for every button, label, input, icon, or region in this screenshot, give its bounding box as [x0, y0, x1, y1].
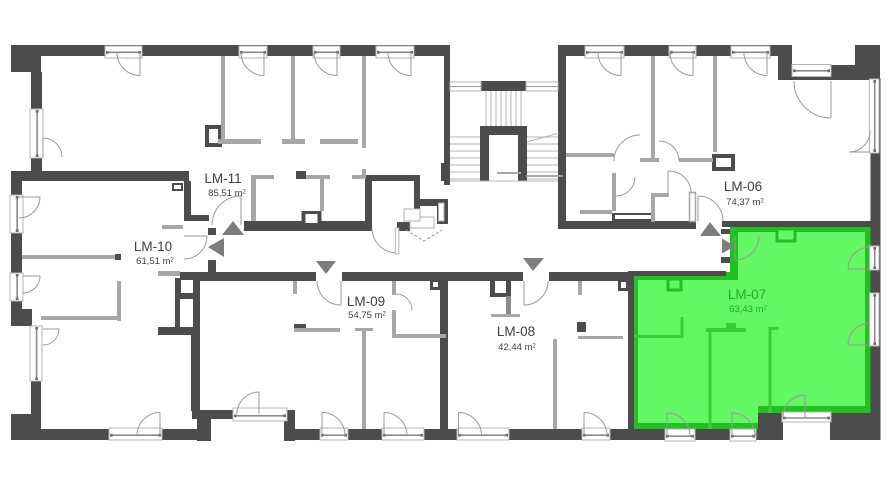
svg-text:LM-08: LM-08 [497, 324, 535, 339]
svg-text:63,43 m2: 63,43 m2 [729, 304, 767, 315]
svg-text:74,37 m2: 74,37 m2 [726, 197, 764, 208]
svg-text:54,75 m2: 54,75 m2 [348, 310, 386, 321]
svg-text:LM-07: LM-07 [728, 287, 766, 302]
svg-text:LM-10: LM-10 [134, 239, 172, 254]
svg-text:61,51 m2: 61,51 m2 [136, 256, 174, 267]
svg-text:LM-06: LM-06 [724, 179, 762, 194]
svg-text:42,44 m2: 42,44 m2 [498, 342, 536, 353]
svg-text:LM-11: LM-11 [204, 171, 241, 186]
svg-text:85,51 m2: 85,51 m2 [208, 188, 246, 199]
svg-text:LM-09: LM-09 [347, 294, 385, 309]
